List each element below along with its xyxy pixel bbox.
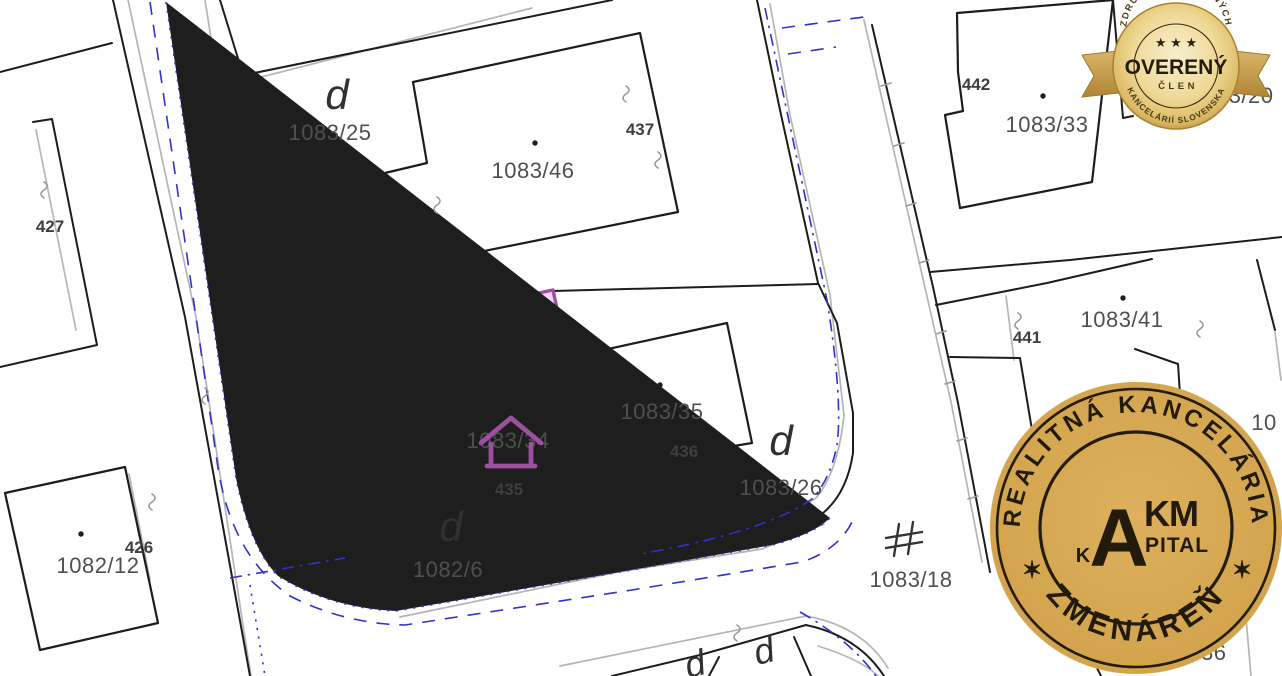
building-426 xyxy=(5,467,158,650)
badge-stars: ★ ★ ★ xyxy=(1155,35,1197,50)
survey-hook xyxy=(1015,313,1021,329)
parcel-boundary xyxy=(930,237,1282,272)
building-inner-gray xyxy=(1006,296,1014,360)
building-inner-gray xyxy=(36,130,76,330)
verified-member-badge: ZDRUŽENIE REALITNÝCH KANCELÁRIÍ SLOVENSK… xyxy=(1078,0,1274,140)
road-edge-gray xyxy=(1275,332,1281,380)
road-edge-gray xyxy=(560,616,888,668)
building-dot xyxy=(78,531,83,536)
badge-title: OVERENÝ xyxy=(1125,55,1228,79)
building-dot xyxy=(1040,93,1045,98)
stamp-logo-pital: PITAL xyxy=(1145,534,1209,557)
stamp-star-right: ✶ xyxy=(1232,557,1252,584)
stamp-logo-a: A xyxy=(1089,493,1148,584)
building-427 xyxy=(0,119,97,367)
road-edge-gray xyxy=(818,646,878,676)
parcel-boundary xyxy=(553,284,818,291)
badge-ribbon-left xyxy=(1082,51,1118,97)
agency-stamp: REALITNÁ KANCELÁRIA ZMENÁREŇ ✶ ✶ K A KM … xyxy=(988,380,1282,676)
utility-line xyxy=(250,585,265,676)
cadastral-map-view: d1083/251083/464374274421083/331083/2044… xyxy=(0,0,1282,676)
building-dot xyxy=(1120,295,1125,300)
stamp-logo-km: KM xyxy=(1144,493,1198,534)
gate-icon xyxy=(886,522,922,556)
parcel-boundary xyxy=(709,657,719,676)
utility-line xyxy=(782,16,871,28)
parcel-boundary xyxy=(794,637,811,676)
utility-line xyxy=(788,47,836,54)
building-dot xyxy=(657,382,662,387)
parcel-boundary xyxy=(1257,260,1275,330)
parcel-boundary xyxy=(0,43,112,72)
badge-subtitle: ČLEN xyxy=(1158,80,1198,92)
survey-hook xyxy=(1197,321,1203,337)
parcel-boundary xyxy=(936,259,1152,305)
stamp-star-left: ✶ xyxy=(1022,557,1042,584)
survey-hook xyxy=(41,182,47,198)
house-icon xyxy=(470,403,550,473)
survey-hook xyxy=(149,494,155,510)
badge-ribbon-right xyxy=(1234,51,1270,97)
survey-hook xyxy=(734,625,740,641)
parcel-boundary xyxy=(612,625,884,676)
building-dot xyxy=(532,140,537,145)
